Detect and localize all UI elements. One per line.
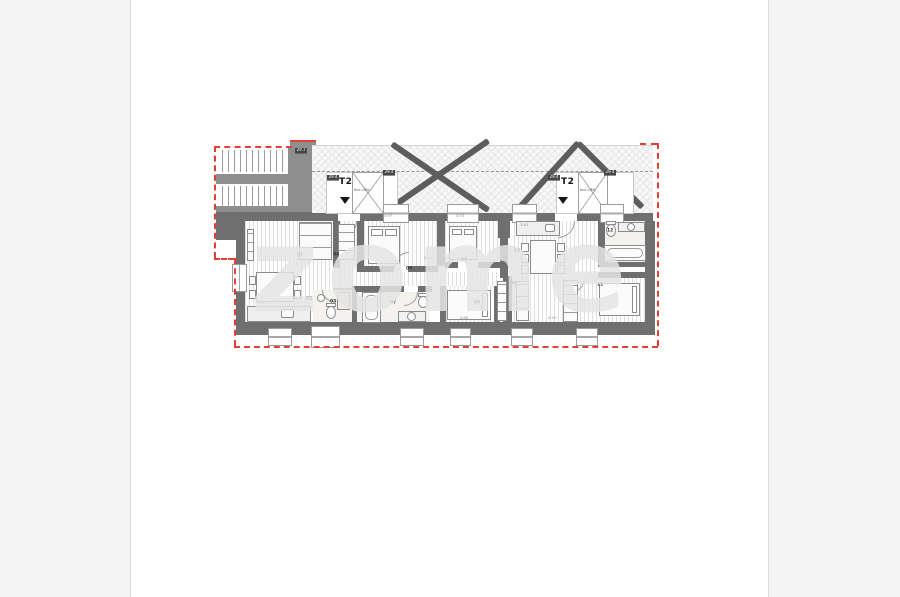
dimension-label: 4.88 — [460, 316, 468, 320]
room-number: 12 — [607, 228, 613, 233]
room-number: 11 — [597, 282, 603, 287]
sofa — [516, 281, 529, 321]
bed — [599, 283, 640, 316]
site-boundary-dashed — [234, 346, 658, 348]
room-number: 04 — [333, 252, 339, 257]
room-floor-corridor — [340, 272, 500, 286]
wall-segment — [645, 221, 655, 335]
room-number: 02 — [306, 296, 312, 301]
bathtub-basin — [365, 295, 378, 320]
chair — [249, 290, 256, 299]
chair — [521, 243, 529, 252]
toilet — [418, 296, 428, 308]
washbasin — [627, 223, 635, 231]
dining-table — [530, 240, 556, 274]
window — [450, 328, 471, 346]
bed — [447, 290, 491, 320]
wall-segment — [445, 262, 458, 268]
area-badge: 29.7 — [295, 148, 307, 154]
wall-segment — [357, 221, 364, 272]
site-boundary-dashed — [214, 146, 216, 258]
staircase-landing-wall — [216, 174, 290, 184]
bathtub — [604, 245, 646, 261]
roof-slope-label-right: Incl.=8% — [580, 188, 596, 192]
kitchen-sink — [281, 309, 294, 318]
dimension-label: 3.15 — [610, 265, 618, 269]
washbasin — [407, 312, 416, 321]
floor-plan: T2 T2 Incl.=8% Incl.=8% — [0, 0, 900, 597]
staircase-lower-flight — [222, 186, 288, 206]
pillow — [452, 229, 462, 235]
chair — [249, 276, 256, 285]
room-number: 01 — [297, 252, 303, 257]
area-badge: 29.4 — [604, 170, 616, 176]
room-number: 07 — [390, 300, 396, 305]
room-number: 10 — [514, 248, 520, 253]
unit-label-t2-right: T2 — [561, 177, 574, 187]
pillow — [371, 229, 383, 236]
entrance-arrow-left — [340, 197, 350, 204]
site-boundary-dashed — [214, 146, 292, 148]
chair — [294, 290, 301, 299]
pillow — [464, 229, 474, 235]
room-number: 03 — [330, 299, 336, 304]
kitchen-sink — [545, 224, 555, 232]
area-badge: 29.4 — [548, 175, 560, 181]
dimension-label: 3.63 — [520, 223, 528, 227]
shelf — [497, 281, 507, 321]
bathtub-basin — [607, 248, 643, 258]
toilet — [326, 306, 336, 319]
site-boundary-dashed — [640, 143, 657, 145]
window — [576, 328, 598, 346]
chair — [521, 265, 529, 274]
wall-segment — [478, 262, 500, 268]
site-boundary-dashed — [214, 258, 234, 260]
chair — [521, 254, 529, 263]
wardrobe — [338, 224, 355, 260]
dimension-label: 3.51 — [258, 301, 266, 305]
staircase-upper-flight — [222, 150, 288, 172]
wardrobe — [563, 280, 578, 322]
chair — [557, 265, 565, 274]
site-boundary-dashed — [657, 143, 659, 346]
room-number: 06 — [461, 257, 467, 262]
washbasin — [317, 294, 325, 302]
window — [311, 326, 340, 348]
room-number: 08 — [474, 300, 480, 305]
area-badge: 29.4 — [383, 170, 395, 176]
pillow — [482, 293, 488, 317]
kitchen-counter — [247, 306, 311, 322]
unit-label-t2-left: T2 — [339, 177, 352, 187]
chair — [557, 254, 565, 263]
dimension-label: 4.55 — [548, 316, 556, 320]
bed — [368, 226, 400, 264]
shelf — [247, 229, 254, 261]
entrance-arrow-right — [558, 197, 568, 204]
site-boundary-dashed — [234, 258, 236, 346]
pillow — [632, 286, 637, 313]
bathtub — [362, 292, 381, 323]
window — [268, 328, 292, 346]
sofa — [299, 222, 332, 260]
room-number: 09 — [510, 281, 516, 286]
window — [400, 328, 424, 346]
pillow — [385, 229, 397, 236]
roof-window-left — [352, 172, 384, 214]
roof-slope-label-left: Incl.=8% — [354, 188, 370, 192]
shower-tray — [337, 292, 350, 310]
dimension-label: 2.03 — [424, 256, 432, 260]
chair — [557, 243, 565, 252]
wall-segment — [500, 238, 508, 278]
room-number: 05 — [406, 266, 412, 271]
chair — [294, 276, 301, 285]
bed — [449, 226, 477, 260]
area-badge: 29.4 — [327, 175, 339, 181]
staircase-side-wall — [288, 148, 314, 208]
dimension-label: 4.53 — [456, 214, 464, 218]
dimension-label: 4.97 — [384, 214, 392, 218]
window — [511, 328, 533, 346]
dining-table — [256, 272, 294, 302]
canvas-background: T2 T2 Incl.=8% Incl.=8% — [0, 0, 900, 597]
